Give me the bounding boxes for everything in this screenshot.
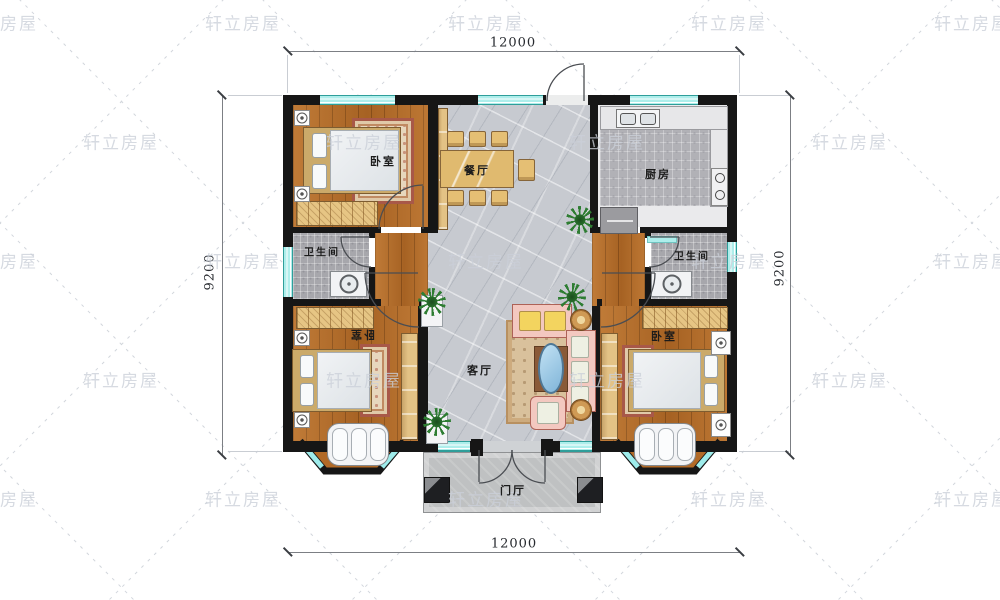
bay-sofa-right (634, 423, 696, 466)
kitchen-cabinet (600, 207, 638, 234)
wardrobe-bedroom-br (642, 307, 728, 329)
bay-sofa-left (327, 423, 389, 466)
dim-right-value: 9200 (773, 249, 788, 286)
wall-bedroombr-north-stub (597, 299, 602, 306)
dining-chair (469, 131, 486, 147)
label-kitchen: 厨房 (645, 166, 671, 182)
wardrobe-bedroom-bl (296, 307, 374, 329)
label-living: 客厅 (467, 362, 493, 378)
wall-kitchen-south (640, 227, 737, 233)
dining-chair (469, 190, 486, 206)
floorplan-canvas: 卧室 餐厅 厨房 卫生间 卫生间 卧室 客厅 卧室 门厅 12000 12000… (0, 0, 1000, 600)
dining-chair (447, 131, 464, 147)
side-table-round (570, 309, 592, 331)
label-foyer: 门厅 (500, 482, 526, 498)
label-bath-left: 卫生间 (304, 244, 340, 259)
nightstand-lamp-icon (711, 413, 731, 437)
bed-bedroom-br (628, 349, 725, 412)
bay-windows (0, 0, 1000, 600)
sink-vanity-left (330, 271, 367, 297)
door-post-left (471, 439, 483, 456)
porch-pillar-right (577, 477, 603, 503)
bed-bedroom-bl (292, 349, 372, 412)
back-door-opening (546, 95, 588, 105)
kitchen-stove (711, 168, 728, 206)
armchair (530, 396, 566, 430)
sofa-top (512, 304, 572, 338)
dim-left-value: 9200 (203, 253, 218, 290)
dining-chair (491, 131, 508, 147)
ceiling-lamp-icon (294, 330, 310, 346)
desk-bedroom-bl (401, 333, 418, 440)
sink-vanity-right (651, 271, 692, 297)
porch-pillar-left (424, 477, 450, 503)
nightstand-lamp-icon (711, 331, 731, 355)
plant-icon (418, 288, 446, 316)
door-post-right (541, 439, 553, 456)
wall-bedroomtl-south (283, 227, 381, 233)
wall-bathr-south (639, 299, 737, 306)
label-bedroom-bl: 卧室 (349, 327, 375, 343)
wall-bedroomtl-south-stub (421, 227, 438, 233)
ceiling-lamp-icon (294, 186, 310, 202)
dining-chair (491, 190, 508, 206)
label-bedroom-br: 卧室 (651, 328, 677, 344)
wall-bedroomtl-dining (428, 95, 438, 233)
wardrobe-bedroom-tl (296, 201, 378, 226)
dresser-bedroom-br (601, 333, 618, 440)
wall-right (727, 95, 737, 452)
kitchen-sink (616, 109, 660, 128)
label-dining: 餐厅 (464, 162, 490, 178)
window-bath-right (727, 242, 737, 272)
ceiling-lamp-icon (294, 412, 310, 428)
label-bath-right: 卫生间 (674, 248, 710, 263)
ceiling-lamp-icon (294, 110, 310, 126)
dining-side-chair (518, 159, 535, 181)
side-table-round (570, 399, 592, 421)
wall-bathl-south (283, 299, 381, 306)
coffee-table-glass (538, 343, 564, 394)
window-living-right (560, 441, 592, 452)
label-bedroom-tl: 卧室 (370, 153, 396, 169)
window-kitchen (630, 95, 698, 105)
wall-bathl-east-top (369, 233, 375, 238)
window-bath-left (283, 247, 293, 297)
bath-right-shelf (647, 236, 677, 243)
entry-door-opening (477, 441, 547, 452)
dining-chair (447, 190, 464, 206)
dim-bottom-value: 12000 (491, 537, 537, 552)
window-dining (478, 95, 543, 105)
window-bedroom-tl (320, 95, 395, 105)
dim-top-value: 12000 (490, 36, 536, 51)
